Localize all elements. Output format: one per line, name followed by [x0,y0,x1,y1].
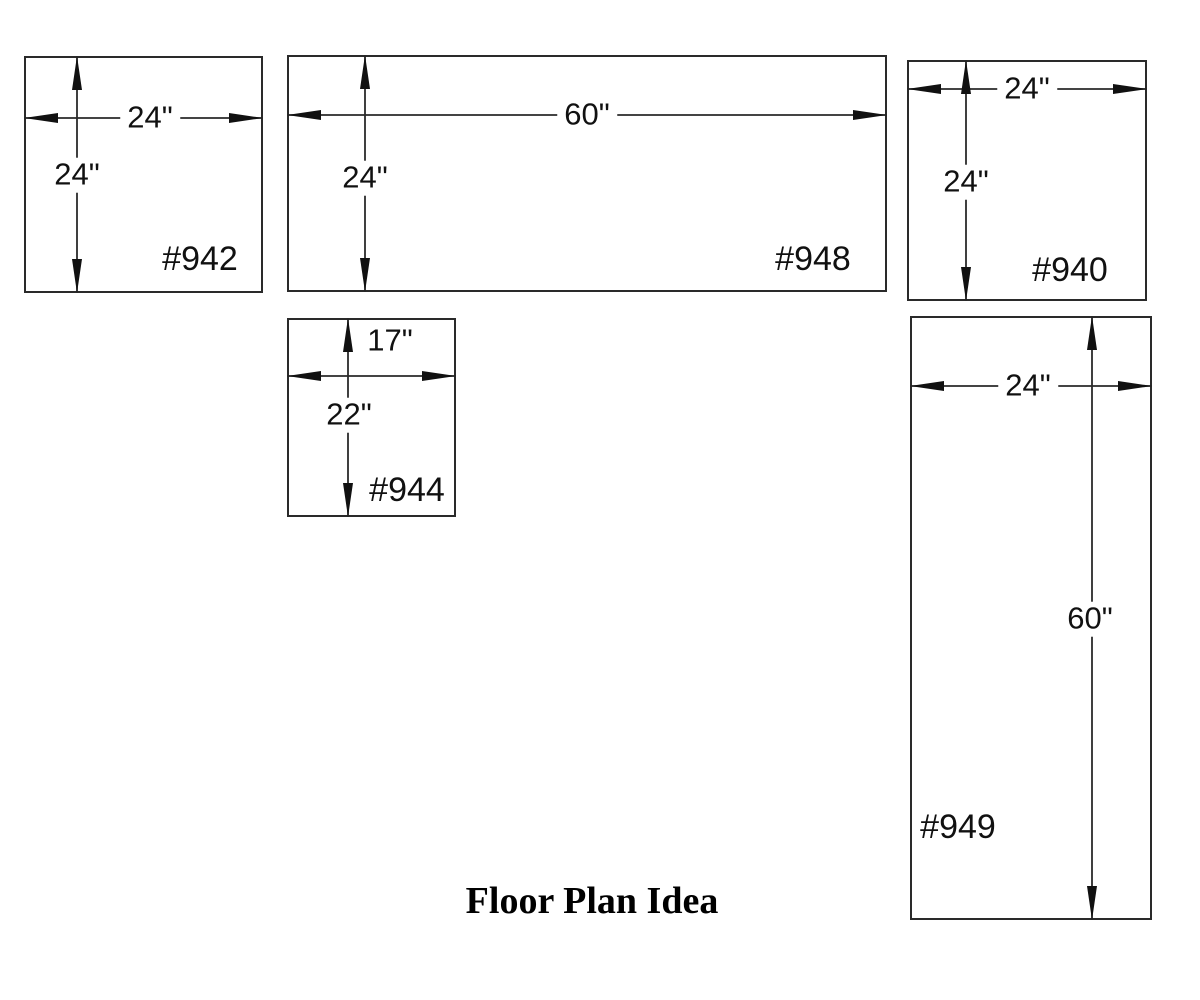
arrow-right-icon [229,113,263,123]
drawing-title: Floor Plan Idea [466,879,719,923]
arrow-left-icon [287,110,321,120]
unit-948-id-label: #948 [775,242,851,278]
arrow-right-icon [422,371,456,381]
unit-944-id-label: #944 [369,473,445,509]
arrow-left-icon [287,371,321,381]
unit-944-height-dimension: 22" [319,398,379,433]
unit-948-height-dimension: 24" [335,161,395,196]
arrow-down-icon [961,267,971,301]
arrow-right-icon [1113,84,1147,94]
unit-949-id-label: #949 [920,810,996,846]
unit-942-width-dimension: 24" [120,101,180,136]
arrow-left-icon [907,84,941,94]
arrow-up-icon [360,55,370,89]
dimension-lines-layer [0,0,1200,1000]
floor-plan-canvas: 24" 24" #942 60" 24" #948 24" 24" #940 1… [0,0,1200,1000]
unit-940-id-label: #940 [1032,253,1108,289]
arrow-left-icon [24,113,58,123]
arrow-down-icon [343,483,353,517]
arrow-right-icon [853,110,887,120]
arrow-down-icon [72,259,82,293]
unit-949-width-dimension: 24" [998,369,1058,404]
unit-942-id-label: #942 [162,242,238,278]
unit-942-height-dimension: 24" [47,158,107,193]
unit-940-height-dimension: 24" [936,165,996,200]
arrow-left-icon [910,381,944,391]
unit-949-height-dimension: 60" [1060,602,1120,637]
arrow-up-icon [343,318,353,352]
arrow-up-icon [1087,316,1097,350]
arrow-up-icon [961,60,971,94]
unit-944-width-dimension: 17" [360,324,420,359]
arrow-down-icon [360,258,370,292]
arrow-right-icon [1118,381,1152,391]
arrow-down-icon [1087,886,1097,920]
arrow-up-icon [72,56,82,90]
unit-940-width-dimension: 24" [997,72,1057,107]
unit-948-width-dimension: 60" [557,98,617,133]
